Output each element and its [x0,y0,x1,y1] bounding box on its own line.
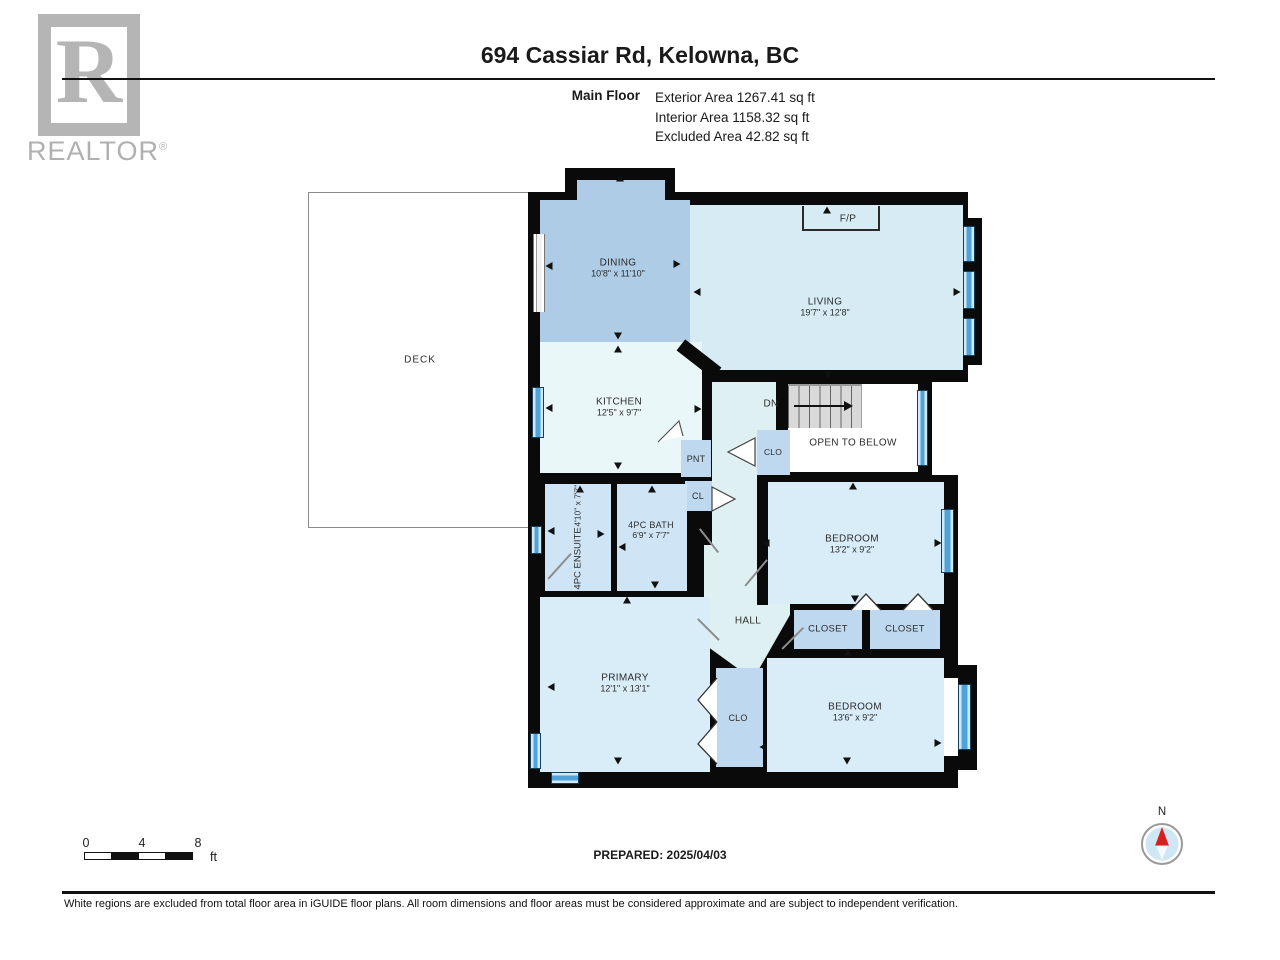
arrow-up-icon [844,649,852,656]
primary-name: PRIMARY [600,673,649,684]
arrow-left-icon [546,404,553,412]
bedroom2-dims: 13'6" x 9'2" [828,713,882,723]
arrow-right-icon [695,405,702,413]
arrow-up-icon [623,597,631,604]
door-swing-clo-stairs-icon [726,437,756,467]
window-living-bay-2 [963,271,975,309]
dining-name: DINING [591,258,645,269]
window-bedroom1-right [941,509,954,573]
arrow-up-icon [849,483,857,490]
arrow-left-icon [548,527,555,535]
living-label: LIVING 19'7" x 12'8" [800,297,849,318]
bedroom1-name: BEDROOM [825,534,879,545]
closet1-label: CLOSET [808,624,848,635]
clo-primary-label: CLO [728,713,747,723]
bedroom2-label: BEDROOM 13'6" x 9'2" [828,702,882,723]
realtor-logo-text: REALTOR [27,136,159,166]
title-divider [62,78,1215,80]
dining-label: DINING 10'8" x 11'10" [591,258,645,279]
kitchen-label: KITCHEN 12'5" x 9'7" [596,397,642,418]
realtor-logo-icon: R [38,14,140,136]
arrow-left-icon [763,539,770,547]
door-swing-clo-primary-icon [694,674,718,766]
arrow-up-icon [648,486,656,493]
living-name: LIVING [800,297,849,308]
cl-label: CL [692,491,704,501]
area-summary: Exterior Area 1267.41 sq ft Interior Are… [655,88,815,147]
arrow-down-icon [851,596,859,603]
arrow-left-icon [619,543,626,551]
ensuite-name: 4PC ENSUITE [573,527,584,589]
bath-dims: 6'9" x 7'7" [628,530,674,540]
window-primary-bottom [551,772,579,784]
primary-label: PRIMARY 12'1" x 13'1" [600,673,649,694]
stair-direction-line [794,405,844,407]
deck-label: DECK [404,355,436,366]
arrow-left-icon [694,288,701,296]
bedroom2-window-niche [944,678,958,756]
arrow-down-icon [614,758,622,765]
hall-label: HALL [735,616,761,627]
footer-divider [62,891,1215,894]
arrow-left-icon [546,262,553,270]
window-bedroom2-right [958,684,971,750]
floorplan-page: R REALTOR® 694 Cassiar Rd, Kelowna, BC M… [0,0,1280,960]
arrow-right-icon [935,539,942,547]
window-living-bay-3 [963,318,975,356]
window-open-below-right [917,390,928,466]
scale-tick-4: 4 [139,836,146,850]
compass-icon [1140,822,1184,866]
arrow-right-icon [674,260,681,268]
bath-name: 4PC BATH [628,520,674,530]
arrow-down-icon [651,582,659,589]
realtor-logo-wordmark: REALTOR® [27,136,168,167]
arrow-up-icon [616,175,624,182]
arrow-left-icon [548,683,555,691]
stair-direction-arrow-icon [844,401,853,411]
exterior-area: Exterior Area 1267.41 sq ft [655,88,815,108]
open-to-below-label: OPEN TO BELOW [809,438,896,449]
arrow-right-icon [935,739,942,747]
interior-area: Interior Area 1158.32 sq ft [655,108,815,128]
scale-segment [84,852,112,860]
scale-segment [165,852,193,860]
window-living-bay-1 [963,226,975,262]
scale-segment [111,852,139,860]
door-swing-pantry-icon [655,418,687,444]
scale-tick-8: 8 [195,836,202,850]
dining-dims: 10'8" x 11'10" [591,269,645,279]
window-ensuite-left [531,526,542,554]
disclaimer-text: White regions are excluded from total fl… [64,898,1224,910]
excluded-area: Excluded Area 42.82 sq ft [655,127,815,147]
bedroom2-name: BEDROOM [828,702,882,713]
arrow-up-icon [614,346,622,353]
ensuite-dims: 4'10" x 7'7" [573,484,584,526]
living-dims: 19'7" x 12'8" [800,308,849,318]
bedroom1-label: BEDROOM 13'2" x 9'2" [825,534,879,555]
scale-unit: ft [210,850,217,864]
door-swing-cl-icon [711,486,737,512]
arrow-up-icon [823,207,831,214]
page-title: 694 Cassiar Rd, Kelowna, BC [0,42,1280,69]
closet2-label: CLOSET [885,624,925,635]
stairs-down-label: DN [763,399,778,410]
compass-north-label: N [1158,806,1166,818]
kitchen-name: KITCHEN [596,397,642,408]
arrow-down-icon [843,758,851,765]
bedroom1-dims: 13'2" x 9'2" [825,545,879,555]
registered-mark: ® [159,141,168,153]
scale-tick-0: 0 [83,836,90,850]
arrow-down-icon [824,372,832,379]
arrow-down-icon [614,333,622,340]
patio-door [533,234,545,312]
prepared-date: PREPARED: 2025/04/03 [400,848,920,862]
fireplace-label: F/P [840,214,856,225]
arrow-right-icon [598,530,605,538]
scale-bar [85,852,193,860]
pantry-label: PNT [687,454,706,464]
clo-stairs-label: CLO [764,447,782,457]
arrow-left-icon [760,743,767,751]
arrow-down-icon [614,463,622,470]
bath-label: 4PC BATH 6'9" x 7'7" [628,520,674,540]
floor-label: Main Floor [440,88,640,103]
window-kitchen-left [532,387,544,438]
arrow-right-icon [954,288,961,296]
bifold-doors-closet-icon [845,591,945,612]
kitchen-dims: 12'5" x 9'7" [596,408,642,418]
scale-segment [138,852,166,860]
ensuite-label: 4PC ENSUITE 4'10" x 7'7" [573,484,584,589]
primary-dims: 12'1" x 13'1" [600,684,649,694]
window-primary-left [530,733,541,769]
realtor-logo-letter: R [56,25,122,117]
